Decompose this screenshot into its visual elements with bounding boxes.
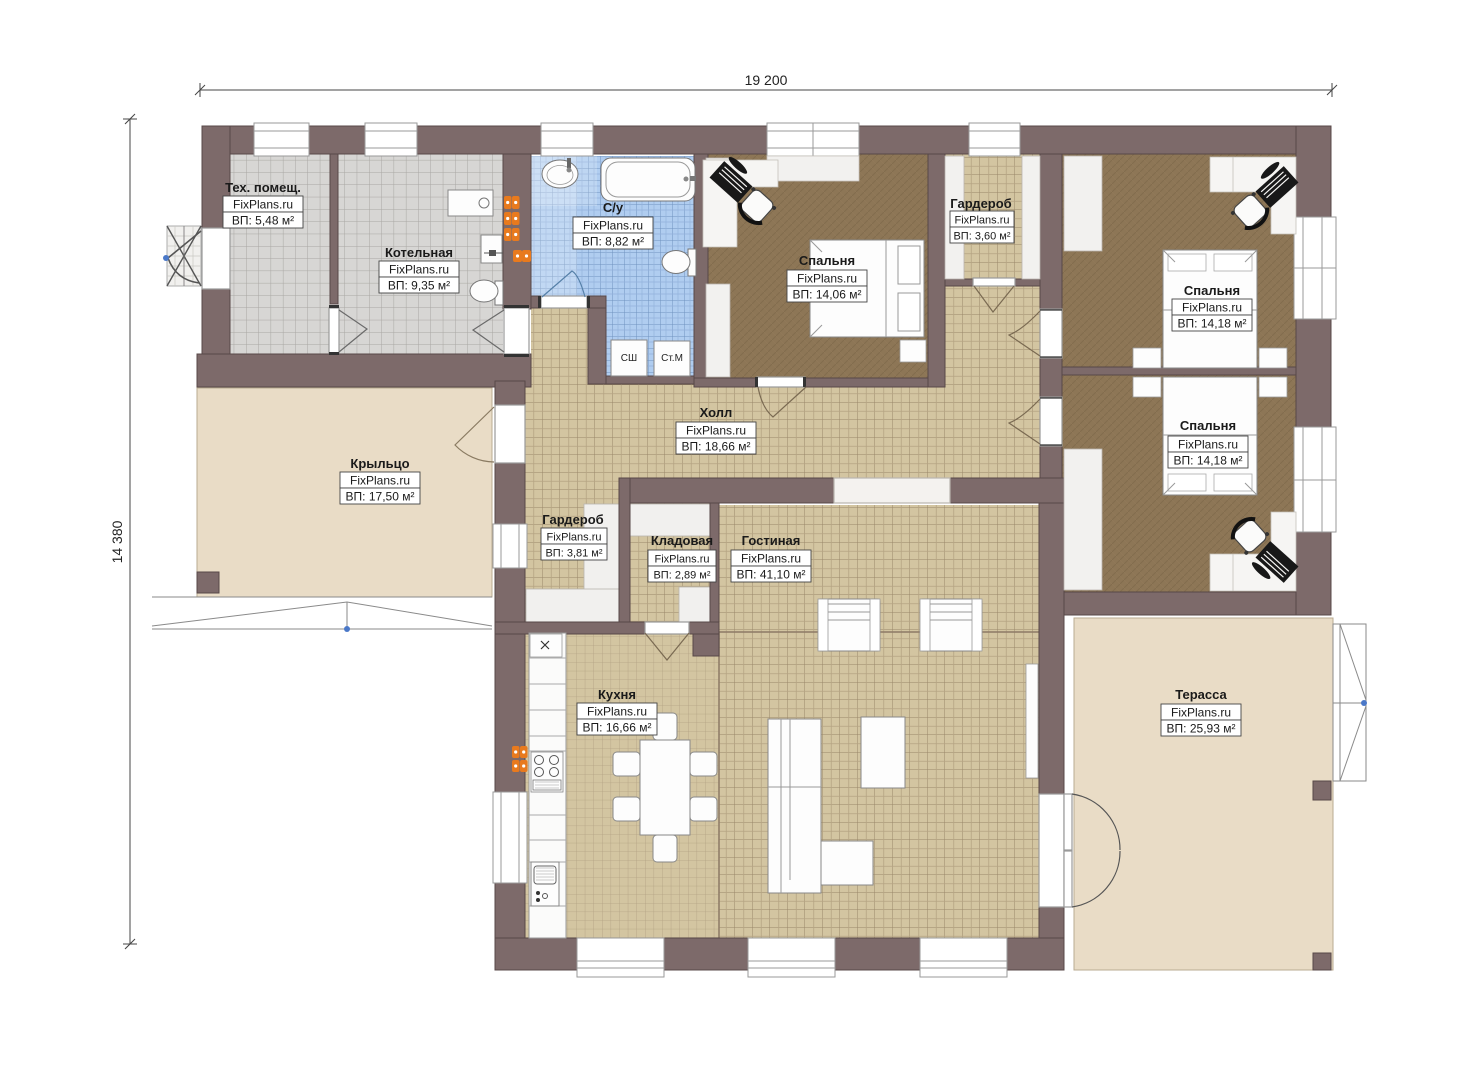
svg-text:Кухня: Кухня [598, 687, 636, 702]
svg-text:FixPlans.ru: FixPlans.ru [583, 219, 643, 233]
svg-text:Ст.М: Ст.М [661, 353, 683, 364]
svg-text:ВП: 14,18 м²: ВП: 14,18 м² [1178, 317, 1247, 331]
svg-text:FixPlans.ru: FixPlans.ru [686, 424, 746, 438]
svg-text:Холл: Холл [700, 405, 733, 420]
svg-text:FixPlans.ru: FixPlans.ru [389, 263, 449, 277]
svg-text:FixPlans.ru: FixPlans.ru [1171, 706, 1231, 720]
svg-text:СШ: СШ [621, 353, 637, 364]
svg-text:ВП: 41,10 м²: ВП: 41,10 м² [737, 568, 806, 582]
svg-text:ВП: 16,66 м²: ВП: 16,66 м² [583, 721, 652, 735]
svg-text:ВП: 3,81 м²: ВП: 3,81 м² [545, 548, 602, 560]
svg-text:ВП: 8,82 м²: ВП: 8,82 м² [582, 235, 644, 249]
svg-text:FixPlans.ru: FixPlans.ru [797, 272, 857, 286]
svg-text:FixPlans.ru: FixPlans.ru [1178, 438, 1238, 452]
svg-text:ВП: 14,06 м²: ВП: 14,06 м² [793, 288, 862, 302]
svg-text:Тех. помещ.: Тех. помещ. [225, 180, 301, 195]
svg-text:Гардероб: Гардероб [542, 512, 603, 527]
svg-text:FixPlans.ru: FixPlans.ru [350, 474, 410, 488]
svg-text:Кладовая: Кладовая [651, 533, 713, 548]
svg-text:Гардероб: Гардероб [950, 196, 1011, 211]
svg-text:ВП: 14,18 м²: ВП: 14,18 м² [1174, 454, 1243, 468]
svg-text:FixPlans.ru: FixPlans.ru [1182, 301, 1242, 315]
svg-text:Спальня: Спальня [1184, 283, 1240, 298]
svg-text:ВП: 5,48 м²: ВП: 5,48 м² [232, 214, 294, 228]
svg-text:Спальня: Спальня [799, 253, 855, 268]
svg-text:FixPlans.ru: FixPlans.ru [654, 554, 709, 566]
svg-text:Гостиная: Гостиная [742, 533, 801, 548]
svg-text:ВП: 18,66 м²: ВП: 18,66 м² [682, 440, 751, 454]
svg-text:ВП: 25,93 м²: ВП: 25,93 м² [1167, 722, 1236, 736]
svg-text:Терасса: Терасса [1175, 687, 1227, 702]
svg-text:14 380: 14 380 [109, 520, 125, 563]
svg-text:FixPlans.ru: FixPlans.ru [954, 215, 1009, 227]
svg-text:ВП: 17,50 м²: ВП: 17,50 м² [346, 490, 415, 504]
svg-text:FixPlans.ru: FixPlans.ru [233, 198, 293, 212]
svg-text:ВП: 9,35 м²: ВП: 9,35 м² [388, 279, 450, 293]
svg-text:FixPlans.ru: FixPlans.ru [741, 552, 801, 566]
svg-text:ВП: 2,89 м²: ВП: 2,89 м² [653, 570, 710, 582]
svg-text:Крыльцо: Крыльцо [350, 456, 409, 471]
svg-text:FixPlans.ru: FixPlans.ru [587, 705, 647, 719]
svg-text:С/у: С/у [603, 200, 624, 215]
svg-text:19 200: 19 200 [745, 72, 788, 88]
svg-text:FixPlans.ru: FixPlans.ru [546, 532, 601, 544]
svg-text:Спальня: Спальня [1180, 418, 1236, 433]
svg-text:Котельная: Котельная [385, 245, 453, 260]
svg-text:ВП: 3,60 м²: ВП: 3,60 м² [953, 231, 1010, 243]
